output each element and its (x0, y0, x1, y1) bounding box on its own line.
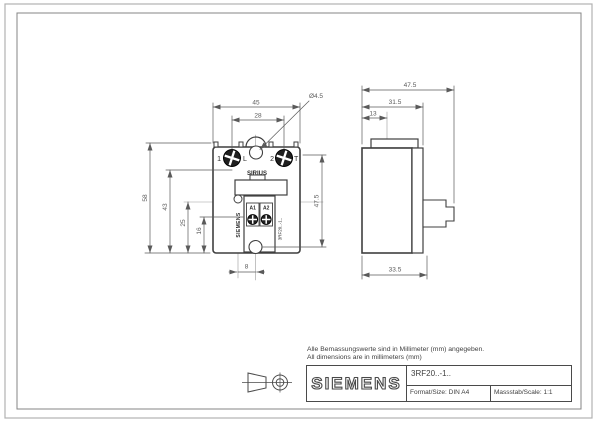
dim-hole-spacing-vertical: 47.5 (314, 194, 321, 207)
front-view: 1 L 2 T SIRIUS A1 A2 SIEMENS 3RF20..-1.. (142, 93, 326, 280)
relay-body-side (362, 148, 412, 253)
title-block-bottom-row: Format/Size: DIN A4 Massstab/Scale: 1:1 (407, 386, 571, 401)
part-vertical-label: 3RF20..-1.. (278, 218, 283, 241)
scale-cell: Massstab/Scale: 1:1 (491, 386, 571, 401)
note-german: Alle Bemassungswerte sind in Millimeter … (307, 346, 484, 354)
control-screw-a1 (248, 215, 258, 225)
relay-top-cap-side (371, 139, 418, 148)
label-plate (235, 180, 287, 195)
dim-hole-diameter: Ø4.5 (309, 93, 323, 100)
dim-hole-axis-depth: 13 (369, 111, 377, 118)
terminal-lug-side (423, 200, 454, 227)
title-block-brand-cell: SIEMENS (307, 366, 407, 401)
terminal-2-number: 2 (270, 156, 274, 163)
projection-symbol (242, 373, 292, 393)
status-led (234, 195, 242, 203)
dim-25: 25 (180, 219, 187, 227)
dim-overall-depth: 47.5 (404, 82, 417, 89)
a2-label: A2 (263, 206, 270, 212)
siemens-logo: SIEMENS (311, 374, 402, 394)
mounting-hole-top (250, 146, 263, 159)
label-plate-tab (250, 175, 265, 180)
dim-overall-height: 58 (142, 194, 149, 202)
dim-base-depth: 33.5 (389, 267, 402, 274)
side-view: 47.5 31.5 13 33.5 (362, 82, 454, 279)
dim-43: 43 (162, 203, 169, 211)
title-block: SIEMENS 3RF20..-1.. Format/Size: DIN A4 … (306, 365, 572, 402)
dim-16: 16 (196, 227, 203, 235)
terminal-1-number: 1 (217, 156, 221, 163)
dim-body-depth: 31.5 (389, 99, 402, 106)
technical-drawing: 1 L 2 T SIRIUS A1 A2 SIEMENS 3RF20..-1.. (0, 0, 600, 424)
note-english: All dimensions are in millimeters (mm) (307, 354, 484, 362)
control-screw-a2 (261, 215, 271, 225)
dimension-notes: Alle Bemassungswerte sind in Millimeter … (307, 346, 484, 362)
title-block-right: 3RF20..-1.. Format/Size: DIN A4 Massstab… (407, 366, 571, 401)
siemens-vertical-label: SIEMENS (236, 212, 242, 238)
dim-led-offset: 8 (245, 264, 249, 271)
dim-overall-width: 45 (252, 100, 260, 107)
relay-back-plate-side (412, 148, 423, 253)
part-number: 3RF20..-1.. (407, 366, 571, 386)
dim-terminal-spacing: 28 (254, 113, 262, 120)
terminal-2-tag: T (294, 156, 299, 163)
terminal-1-tag: L (243, 156, 247, 163)
drawing-sheet: 1 L 2 T SIRIUS A1 A2 SIEMENS 3RF20..-1.. (0, 0, 600, 424)
mounting-hole-bottom (249, 241, 262, 254)
a1-label: A1 (249, 206, 256, 212)
format-cell: Format/Size: DIN A4 (407, 386, 491, 401)
